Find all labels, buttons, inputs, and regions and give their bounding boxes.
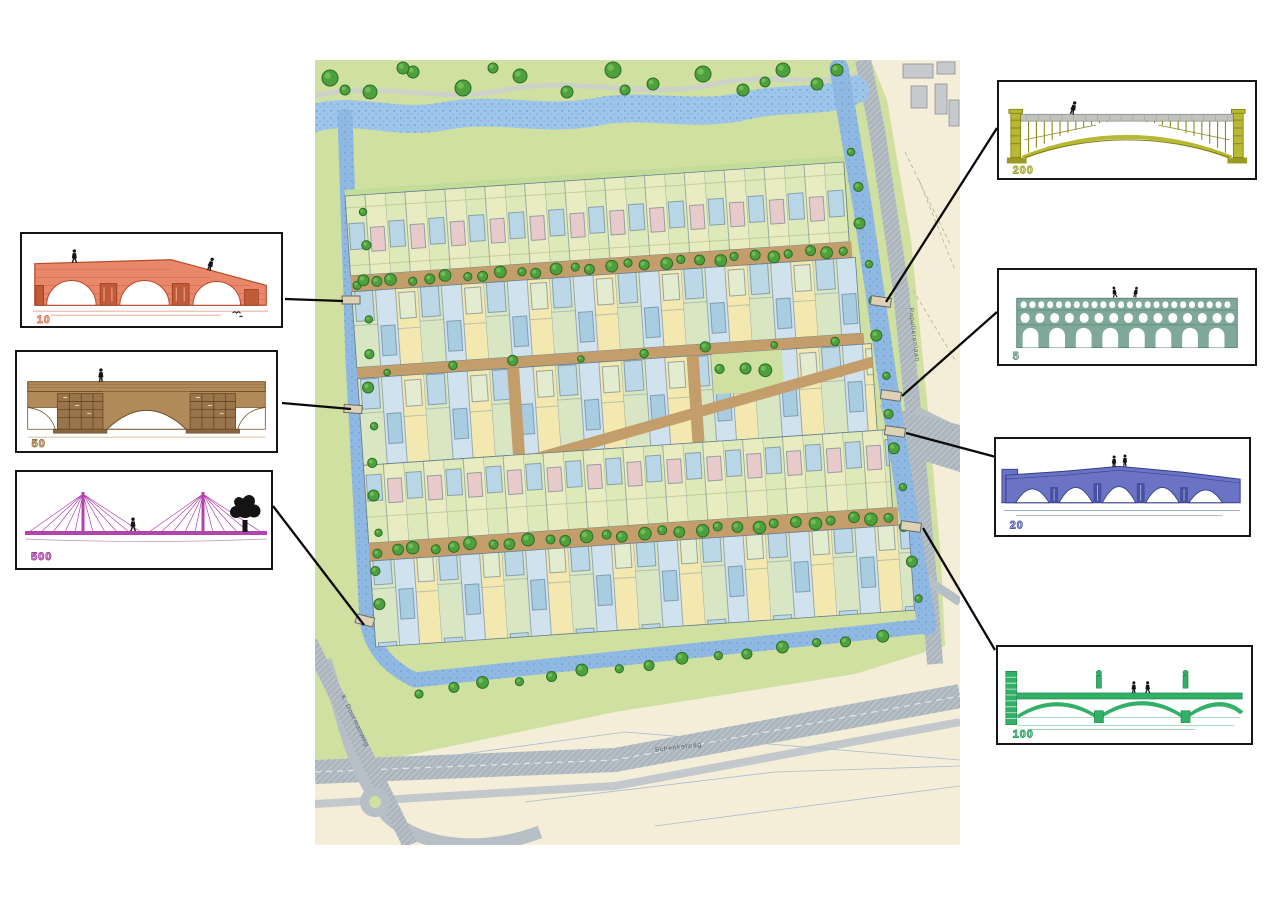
deck [1015, 693, 1242, 699]
bridge-20-label: 20 [1010, 519, 1024, 531]
bridge-500-drawing: 500 [17, 472, 271, 568]
waterline [25, 539, 267, 542]
masts [83, 492, 203, 532]
person-silhouette [1145, 681, 1150, 693]
bridge-10-label: 10 [37, 314, 51, 326]
waterline [1016, 718, 1240, 730]
bridge-5-drawing: 5 [999, 270, 1255, 364]
bird-icon [233, 312, 243, 317]
bridge-50-drawing: 50 [17, 352, 276, 451]
bridge-100-label: 100 [1013, 728, 1034, 740]
person-silhouette [1132, 681, 1136, 693]
bridge-callout-20: 20 [994, 437, 1251, 537]
bridge-callout-100: 100 [996, 645, 1253, 745]
person-silhouette [1112, 456, 1116, 468]
bridge-callout-500: 500 [15, 470, 273, 570]
bridge-callout-50: 50 [15, 350, 278, 453]
person-silhouette [1069, 101, 1077, 115]
deck [28, 382, 266, 392]
bridge-callout-5: 5 [997, 268, 1257, 366]
bridge-500-label: 500 [31, 551, 52, 563]
deck [25, 531, 267, 535]
person-silhouette [1133, 286, 1139, 297]
bridge-20-drawing: 20 [996, 439, 1249, 535]
waterline [1004, 511, 1240, 516]
tree-silhouette [230, 495, 261, 532]
person-silhouette [72, 249, 78, 262]
cables [29, 494, 261, 532]
deck [1021, 114, 1234, 121]
site-plan-map: Schenkelweg Populierenlaan K. Doormanweg [315, 60, 960, 845]
person-silhouette [1111, 286, 1117, 297]
person-silhouette [1123, 455, 1127, 467]
middle-tier-arches [1021, 313, 1235, 323]
person-silhouette [98, 368, 103, 381]
bridge-50-label: 50 [32, 438, 46, 450]
end-tower [1006, 671, 1017, 724]
bridge-callout-10: 10 [20, 232, 283, 328]
person-silhouette [206, 257, 215, 271]
bridge-100-drawing: 100 [998, 647, 1251, 743]
bridge-10-drawing: 10 [22, 234, 281, 326]
bridge-5-label: 5 [1013, 350, 1020, 362]
arches [1018, 703, 1242, 717]
bridge-200-label: 200 [1013, 164, 1034, 176]
bridge-200-drawing: 200 [999, 82, 1255, 178]
figure-canvas: Schenkelweg Populierenlaan K. Doormanweg [0, 0, 1280, 905]
person-silhouette [130, 517, 136, 531]
bridge-callout-200: 200 [997, 80, 1257, 180]
housing-site [345, 153, 915, 647]
